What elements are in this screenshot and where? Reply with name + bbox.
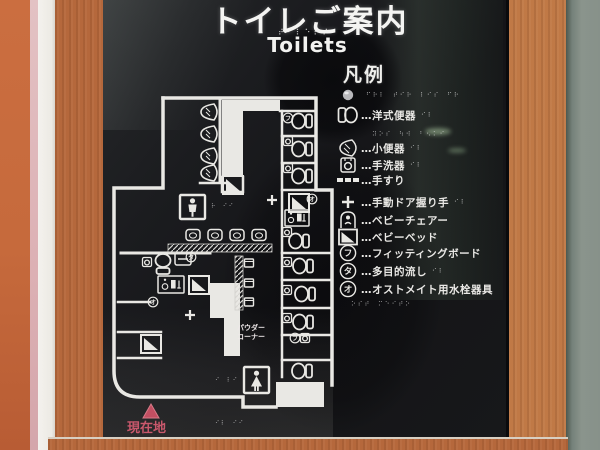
door-frame-white-strip bbox=[38, 0, 55, 450]
braille-dots-icon: ⠊⠇ bbox=[454, 198, 468, 206]
braille-dots-icon: ⠽⠕⠎⠀⠳⠺⠀⠃⠢⠅⠊ bbox=[372, 130, 446, 138]
manual-door-handle-icon bbox=[335, 192, 361, 212]
map-wall-masses bbox=[210, 100, 324, 407]
reflection-floor bbox=[103, 307, 333, 437]
legend-header: 凡例 bbox=[343, 60, 385, 87]
tactile-dot-icon bbox=[335, 85, 361, 105]
legend-item-multipurpose-sink: タ …多目的流し ⠊⠇ bbox=[335, 261, 446, 281]
wood-frame-bottom bbox=[48, 437, 568, 450]
current-location-triangle-icon bbox=[143, 404, 159, 418]
powder-corner-wall-hatched bbox=[235, 256, 243, 310]
braille-dots-icon: ⠊⠇⠀⠊⠊ bbox=[215, 420, 244, 427]
womens-room-icon bbox=[244, 367, 269, 393]
svg-text:パウダー: パウダー bbox=[237, 323, 265, 332]
mens-room-icon bbox=[180, 195, 205, 219]
accessible-toilet-icon bbox=[285, 210, 309, 226]
powder-corner-label: パウダー コーナー bbox=[237, 323, 265, 341]
door-frame-pink-strip bbox=[30, 0, 38, 450]
sign-subtitle: Toilets bbox=[103, 33, 506, 57]
handrail-icon bbox=[335, 170, 361, 190]
svg-text:フ: フ bbox=[344, 249, 353, 259]
braille-dots-icon: ⠊⠇ bbox=[410, 161, 424, 169]
svg-text:タ: タ bbox=[344, 266, 353, 277]
braille-dots-icon: ⠕⠎⠞⠀⠍⠑⠊⠞⠕ bbox=[351, 300, 412, 308]
multipurpose-sink-icon bbox=[175, 253, 191, 265]
legend-item-western-toilet: …洋式便器 ⠊⠇ bbox=[335, 105, 435, 125]
sink-row-icons bbox=[186, 230, 266, 241]
map-symbol-markers: フ オ タ オ フ bbox=[148, 113, 317, 343]
fitting-board-icon: フ bbox=[335, 243, 361, 263]
ostomate-marker: オ bbox=[309, 196, 315, 203]
wood-frame-right bbox=[506, 0, 566, 450]
multipurpose-sink-marker: タ bbox=[188, 253, 194, 261]
braille-dots-icon: ⠊⠇ bbox=[410, 144, 424, 152]
current-location-marker: 現在地 bbox=[127, 404, 166, 436]
braille-dots-icon: ⠊⠇ bbox=[432, 267, 446, 275]
wood-frame-left bbox=[55, 0, 103, 450]
legend-item-handrail: …手すり bbox=[335, 170, 405, 190]
background-wall bbox=[566, 0, 600, 450]
braille-dots-icon: ⠊⠀⠇⠊ bbox=[215, 377, 239, 384]
ostomate-marker: オ bbox=[150, 299, 156, 306]
toilet-icons bbox=[156, 114, 316, 379]
multipurpose-sink-legend-icon: タ bbox=[335, 261, 361, 281]
western-toilet-icon bbox=[335, 105, 361, 125]
legend-item-tactile-dot: ⠋⠗⠇⠀⠞⠊⠗⠀⠇⠊⠎⠀⠋⠗ bbox=[335, 85, 461, 105]
baby-bed-icons bbox=[141, 176, 309, 353]
hand-wash-icons bbox=[143, 137, 310, 343]
toilet-guide-sign: トイレご案内 ⠞⠊⠇⠑⠞⠎ Toilets bbox=[103, 0, 509, 443]
fitting-board-marker: フ bbox=[285, 115, 291, 122]
door-handle-icons bbox=[185, 195, 277, 320]
svg-text:コーナー: コーナー bbox=[237, 333, 265, 341]
ostomate-fixture-icon: オ bbox=[335, 279, 361, 299]
photo-of-toilet-guide-sign: トイレご案内 ⠞⠊⠇⠑⠞⠎ Toilets bbox=[0, 0, 600, 450]
accessible-toilet-icon bbox=[158, 276, 184, 293]
legend: 凡例 ⠋⠗⠇⠀⠞⠊⠗⠀⠇⠊⠎⠀⠋⠗ …洋式便器 ⠊⠇ ⠽⠕⠎⠀⠳⠺⠀⠃⠢⠅⠊ bbox=[335, 55, 506, 325]
current-location-label: 現在地 bbox=[127, 420, 166, 436]
door-frame-orange-strip bbox=[0, 0, 30, 450]
braille-dots-icon: ⠗⠀⠊⠊ bbox=[211, 203, 235, 210]
legend-item-ostomate-fixture: オ …オストメイト用水栓器具 bbox=[335, 279, 493, 299]
braille-dots-icon: ⠊⠇ bbox=[421, 111, 435, 119]
fitting-board-marker: フ bbox=[292, 335, 298, 342]
sink-counter-hatched bbox=[168, 244, 272, 252]
legend-item-manual-door-handle: …手動ドア握り手 ⠊⠇ bbox=[335, 192, 468, 212]
svg-text:オ: オ bbox=[344, 285, 353, 295]
urinal-icons bbox=[201, 104, 217, 181]
map-walls bbox=[114, 98, 332, 407]
legend-item-fitting-board: フ …フィッティングボード bbox=[335, 243, 481, 263]
powder-corner-stools bbox=[245, 259, 254, 306]
braille-dots-icon: ⠋⠗⠇⠀⠞⠊⠗⠀⠇⠊⠎⠀⠋⠗ bbox=[366, 91, 461, 99]
